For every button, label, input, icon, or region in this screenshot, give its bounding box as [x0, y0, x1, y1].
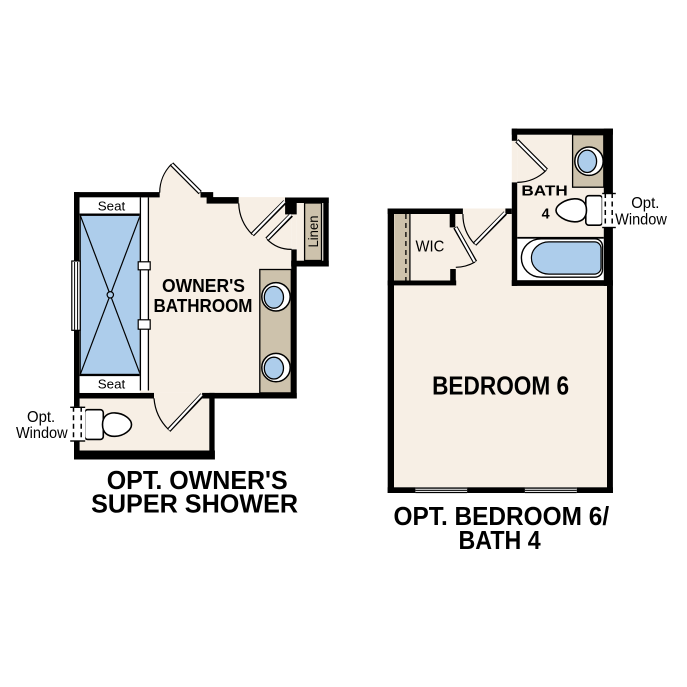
svg-text:BATH 4: BATH 4	[459, 527, 542, 555]
svg-text:Seat: Seat	[98, 376, 126, 391]
svg-text:Linen: Linen	[306, 216, 321, 248]
svg-text:4: 4	[542, 206, 550, 222]
svg-text:BATHROOM: BATHROOM	[154, 295, 253, 316]
svg-text:BEDROOM 6: BEDROOM 6	[432, 371, 569, 401]
svg-text:Opt.: Opt.	[631, 195, 659, 212]
svg-text:OWNER'S: OWNER'S	[162, 275, 245, 296]
svg-text:Seat: Seat	[98, 198, 126, 213]
svg-text:SUPER SHOWER: SUPER SHOWER	[91, 491, 298, 519]
svg-text:WIC: WIC	[416, 239, 445, 256]
svg-text:Window: Window	[615, 212, 667, 229]
svg-text:BATH: BATH	[521, 184, 567, 200]
svg-text:Window: Window	[16, 425, 68, 442]
svg-text:Opt.: Opt.	[27, 409, 55, 426]
